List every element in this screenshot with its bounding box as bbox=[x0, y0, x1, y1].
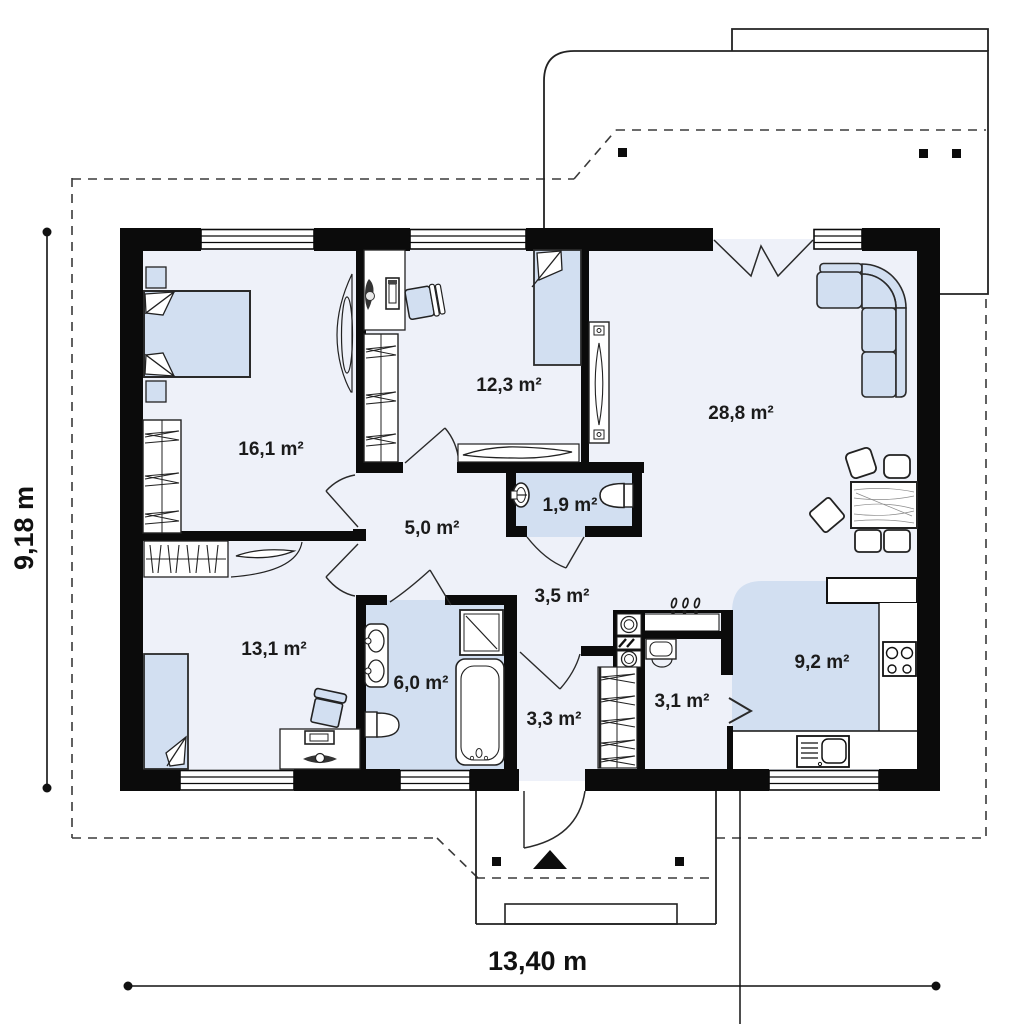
svg-text:13,40 m: 13,40 m bbox=[488, 946, 587, 976]
svg-text:13,1 m²: 13,1 m² bbox=[241, 639, 306, 660]
svg-text:1,9 m²: 1,9 m² bbox=[543, 495, 598, 516]
svg-text:3,3 m²: 3,3 m² bbox=[527, 709, 582, 730]
svg-text:5,0 m²: 5,0 m² bbox=[405, 518, 460, 539]
svg-text:6,0 m²: 6,0 m² bbox=[394, 673, 449, 694]
svg-text:12,3 m²: 12,3 m² bbox=[476, 375, 541, 396]
svg-text:9,2 m²: 9,2 m² bbox=[795, 652, 850, 673]
svg-text:9,18 m: 9,18 m bbox=[9, 486, 39, 570]
svg-text:3,1 m²: 3,1 m² bbox=[655, 691, 710, 712]
svg-text:16,1 m²: 16,1 m² bbox=[238, 439, 303, 460]
svg-text:3,5 m²: 3,5 m² bbox=[535, 586, 590, 607]
svg-text:28,8 m²: 28,8 m² bbox=[708, 403, 773, 424]
